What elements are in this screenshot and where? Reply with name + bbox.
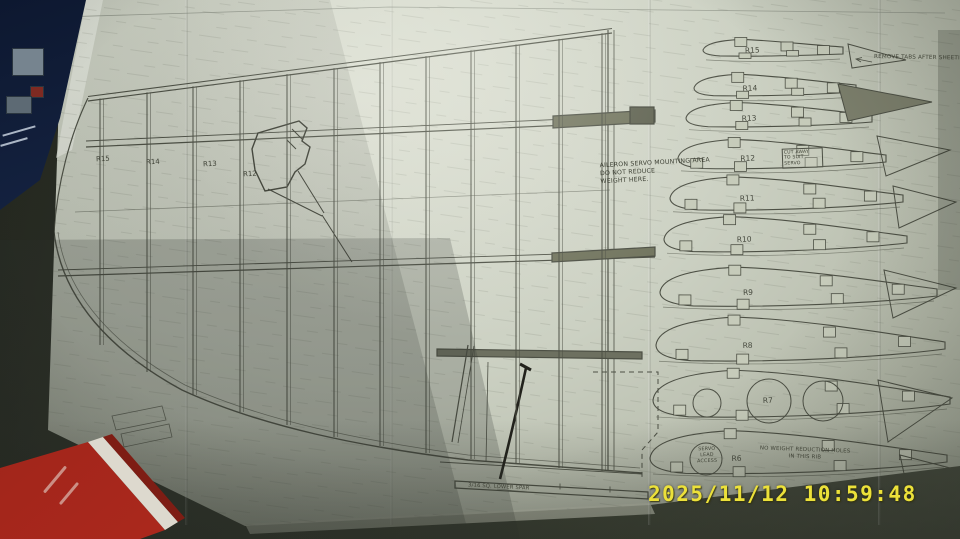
- kit-box-text-smudge: [0, 137, 27, 147]
- note-lower-spar: 3/16 SQ. LOWER SPAR: [468, 482, 530, 492]
- note-servo-lead: SERVO LEAD ACCESS: [687, 446, 728, 466]
- tip-template: [877, 136, 950, 176]
- wing-ribs-layer: [100, 33, 606, 471]
- camera-timestamp: 2025/11/12 10:59:48: [648, 482, 917, 506]
- kit-box-text-smudge: [2, 125, 35, 136]
- rib-template-label: R10: [737, 234, 752, 244]
- note-aileron-servo: AILERON SERVO MOUNTING AREA DO NOT REDUC…: [599, 156, 725, 187]
- rib-template-label: R7: [763, 396, 774, 405]
- remove-tabs-arrow: [856, 58, 872, 63]
- tip-template: [893, 186, 956, 228]
- plan-rib-label: R12: [243, 170, 257, 179]
- main-spar: [86, 121, 655, 147]
- rib-template-label: R15: [745, 45, 760, 55]
- tip-templates-layer: [838, 44, 958, 492]
- tip-template: [838, 84, 932, 121]
- note-remove-tabs: REMOVE TABS AFTER SHEETING TOP S: [874, 54, 960, 63]
- rib-template-label: R14: [742, 83, 757, 93]
- rib-template-r15: R15: [703, 37, 843, 61]
- paper-crease: [390, 0, 393, 525]
- tip-template: [878, 380, 952, 442]
- kit-box-photo: [30, 86, 44, 98]
- rib-template-label: R8: [742, 341, 753, 350]
- plan-rib-label: R14: [146, 158, 160, 167]
- rib-template-r10: R10: [664, 215, 907, 256]
- rib-template-label: R12: [740, 153, 755, 163]
- shadow-overlay: [0, 420, 960, 539]
- kit-box-photo: [6, 96, 32, 114]
- rib-template-label: R13: [742, 113, 757, 123]
- rib-template-r8: R8: [656, 315, 945, 364]
- rib-template-r9: R9: [660, 265, 937, 309]
- aileron-spar: [437, 349, 642, 359]
- pencil-mark: [500, 364, 531, 479]
- rib-template-label: R6: [731, 454, 742, 463]
- rib-templates-layer: R15R14R13R12R11R10R9R8R7R6: [650, 37, 950, 476]
- paper-crease: [648, 0, 651, 525]
- book-spine-text-smudge: [43, 466, 67, 494]
- servo-sketch: [252, 121, 352, 262]
- rib-template-r14: R14: [694, 72, 856, 100]
- wing-tip-outline: [54, 98, 88, 232]
- rib-template-label: R9: [743, 288, 754, 297]
- plan-rib-label: R15: [96, 155, 110, 164]
- shadow-overlay: [938, 30, 960, 290]
- rib-template-label: R11: [740, 193, 755, 203]
- paper-crease: [878, 0, 881, 525]
- paper-crease: [185, 0, 188, 525]
- rib-template-r13: R13: [686, 101, 872, 132]
- rear-spar: [58, 257, 655, 276]
- tip-template: [884, 270, 956, 318]
- note-no-weight: NO WEIGHT REDUCTION HOLES IN THIS RIB: [752, 445, 858, 463]
- kit-box-photo: [12, 48, 44, 76]
- rib-template-r7: R7: [653, 368, 950, 423]
- note-cut-away-box: CUT AWAY TO SUIT SERVO: [782, 147, 824, 168]
- plan-rib-label: R13: [203, 160, 217, 169]
- photo-stage: R15R14R13R12R11R10R9R8R7R6 REMOVE TABS A…: [0, 0, 960, 539]
- leading-edge-curve: [54, 232, 642, 473]
- book-spine-text-smudge: [59, 482, 79, 505]
